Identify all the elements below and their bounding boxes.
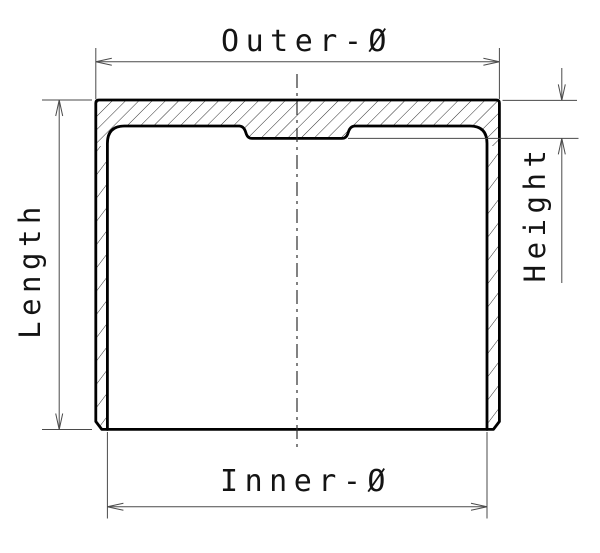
part-outer-outline [96, 100, 500, 429]
outer-diameter-label: Outer-Ø [221, 24, 393, 59]
hatching-side-walls [92, 146, 504, 433]
inner-diameter-label: Inner-Ø [220, 464, 392, 499]
height-label: Height [518, 145, 552, 283]
cross-section-drawing: Outer-Ø Inner-Ø Length [0, 0, 600, 553]
outer-diameter-dimension: Outer-Ø [96, 24, 500, 99]
part-cross-section [92, 97, 504, 433]
technical-drawing-canvas: Outer-Ø Inner-Ø Length [0, 0, 600, 553]
length-label: Length [13, 201, 47, 339]
length-dimension: Length [13, 100, 92, 430]
